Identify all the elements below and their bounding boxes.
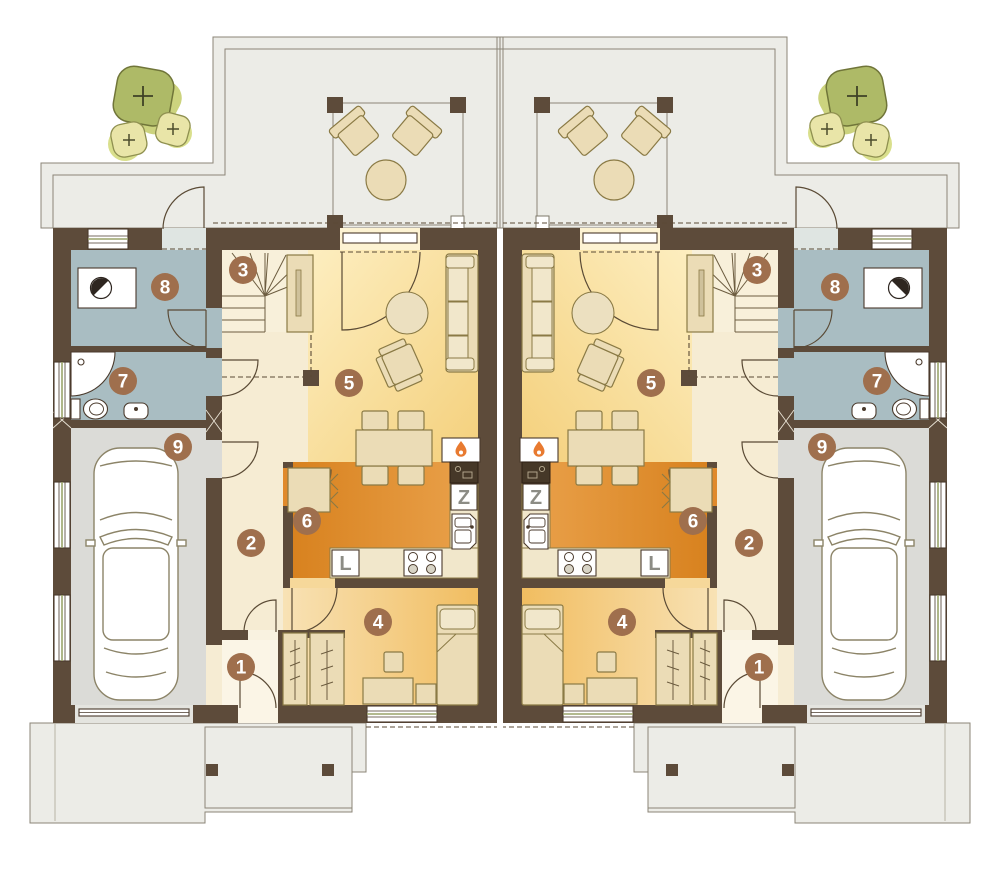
- dining-table: [356, 430, 432, 466]
- kitchen-sink: [452, 514, 476, 549]
- room-label-8-right: 8: [830, 278, 841, 299]
- car: [86, 448, 186, 700]
- gas-boiler: [442, 438, 480, 462]
- bathroom-window: [54, 362, 70, 418]
- porch-post: [322, 764, 334, 776]
- fridge-label-right: L: [648, 553, 660, 575]
- room-label-8: 8: [160, 278, 171, 299]
- driveway-paving: [30, 723, 366, 823]
- garage-gate: [75, 705, 193, 723]
- side-table: [416, 684, 436, 704]
- room-label-5-right: 5: [646, 374, 657, 395]
- left-unit: [30, 37, 500, 823]
- bed: [437, 605, 478, 705]
- tree-cluster: [108, 64, 192, 161]
- fridge-label: L: [339, 553, 351, 575]
- room-label-2-right: 2: [744, 534, 755, 555]
- stair-post: [303, 370, 319, 386]
- desk: [363, 678, 413, 704]
- room-label-7-right: 7: [872, 372, 883, 393]
- room-label-3-right: 3: [752, 261, 763, 282]
- room-label-7: 7: [118, 372, 129, 393]
- dishwasher-label-right: Z: [530, 487, 542, 509]
- room-label-3: 3: [238, 261, 249, 282]
- terrace-table: [366, 160, 406, 200]
- room-label-4: 4: [373, 613, 384, 634]
- room-label-1-right: 1: [754, 658, 765, 679]
- sofa: [446, 254, 478, 372]
- garage-window: [54, 482, 70, 548]
- round-rug: [386, 292, 428, 334]
- party-wall: [478, 228, 497, 723]
- room-label-2: 2: [246, 534, 257, 555]
- cooktop: [404, 550, 442, 576]
- room-label-6-right: 6: [688, 512, 699, 533]
- room-label-1: 1: [236, 658, 247, 679]
- room-label-9: 9: [173, 438, 184, 459]
- dark-counter-appliance: [450, 462, 478, 483]
- room-label-6: 6: [302, 512, 313, 533]
- wardrobes: [283, 633, 344, 705]
- right-unit-mirror: [500, 37, 970, 823]
- bedroom-window: [367, 706, 437, 722]
- corner-cabinet: [288, 468, 330, 512]
- room-label-4-right: 4: [617, 613, 628, 634]
- floor-plan-page: 1 2 3 4 5 6 7 8 9 1 2 3 4 5 6 7 8 9 L Z …: [0, 0, 1000, 879]
- duplex-floor-plan: 1 2 3 4 5 6 7 8 9 1 2 3 4 5 6 7 8 9 L Z …: [0, 0, 1000, 879]
- garage-window: [54, 595, 70, 661]
- toilet: [71, 399, 108, 419]
- room-label-9-right: 9: [817, 438, 828, 459]
- room-label-5: 5: [344, 374, 355, 395]
- porch-post: [206, 764, 218, 776]
- dishwasher-label: Z: [458, 487, 470, 509]
- desk-chair: [384, 652, 403, 672]
- washing-machine: [78, 268, 136, 308]
- utility-window: [88, 229, 128, 249]
